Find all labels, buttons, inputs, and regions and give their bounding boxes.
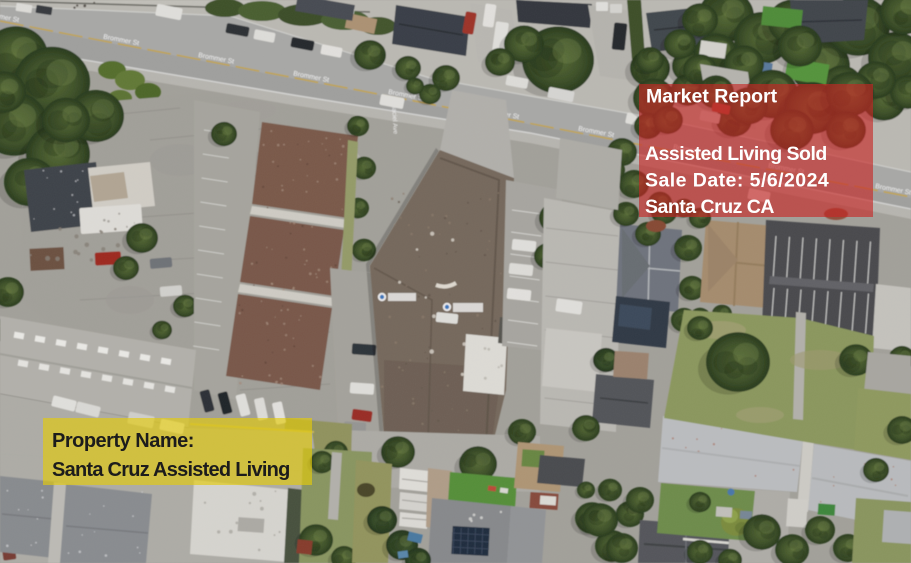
svg-text:Market Report: Market Report <box>646 86 778 108</box>
svg-text:Santa Cruz CA: Santa Cruz CA <box>645 196 774 218</box>
svg-text:Santa Cruz Assisted Living: Santa Cruz Assisted Living <box>52 459 290 481</box>
svg-text:Sale Date: 5/6/2024: Sale Date: 5/6/2024 <box>645 170 829 192</box>
svg-text:Property Name:: Property Name: <box>52 430 194 452</box>
svg-text:Assisted Living Sold: Assisted Living Sold <box>645 143 827 165</box>
